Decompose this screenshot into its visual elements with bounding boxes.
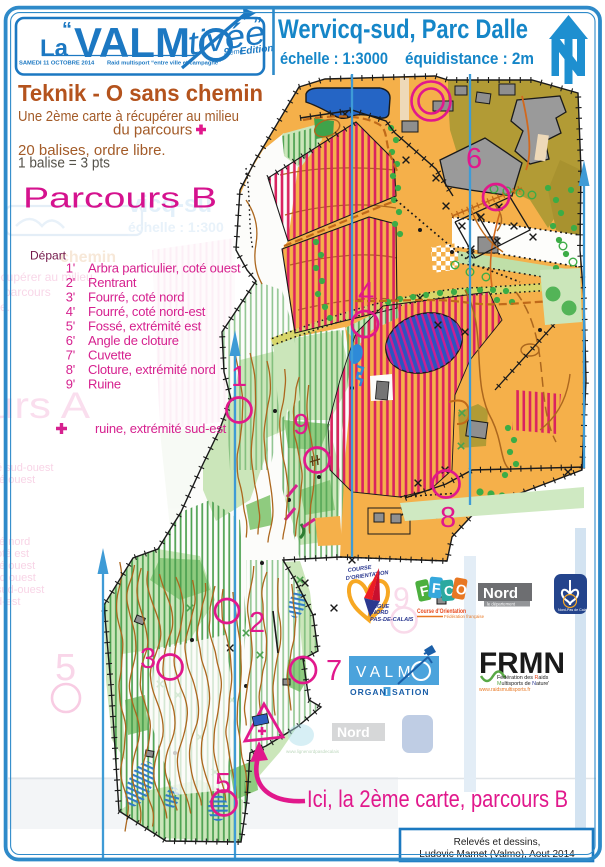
svg-text:Arbra particulier, coté ouest: Arbra particulier, coté ouest [88, 261, 241, 276]
svg-text:1: 1 [231, 361, 247, 393]
svg-text:1': 1' [66, 261, 75, 276]
svg-text:Départ: Départ [30, 249, 67, 263]
svg-text:Raid multisport “entre ville e: Raid multisport “entre ville et campagne… [107, 61, 221, 67]
svg-text:Cloture, extrémité nord: Cloture, extrémité nord [88, 362, 216, 377]
svg-text:“: “ [62, 19, 72, 41]
svg-text:”: ” [253, 14, 262, 34]
svg-text:www.lignenordpasdecalais: www.lignenordpasdecalais [286, 749, 340, 754]
svg-text:I: I [386, 687, 389, 697]
svg-text:5': 5' [66, 319, 75, 334]
svg-text:Teknik - O sans chemin: Teknik - O sans chemin [18, 80, 263, 106]
svg-text:9': 9' [66, 377, 75, 392]
svg-text:4': 4' [66, 304, 75, 319]
svg-text:Nord-Pas de Calais: Nord-Pas de Calais [558, 608, 589, 612]
svg-text:Fourré, coté nord: Fourré, coté nord [88, 290, 184, 305]
svg-text:VALM: VALM [356, 664, 415, 681]
svg-text:www.raidsmultisports.fr: www.raidsmultisports.fr [479, 687, 531, 693]
svg-text:ruine, extrémité sud-est: ruine, extrémité sud-est [95, 421, 227, 436]
svg-text:Fossé, extrémité est: Fossé, extrémité est [88, 319, 202, 334]
svg-text:Fédération française: Fédération française [444, 614, 485, 619]
svg-text:5: 5 [55, 647, 76, 689]
svg-text:3: 3 [140, 643, 156, 675]
svg-text:é sud-ouest: é sud-ouest [0, 462, 53, 474]
svg-text:Nord: Nord [337, 724, 370, 740]
svg-text:le département: le département [487, 602, 516, 607]
svg-text:Nord: Nord [483, 585, 518, 602]
svg-text:Relevés et dessins,: Relevés et dessins, [454, 837, 541, 848]
svg-text:du parcours: du parcours [113, 122, 192, 139]
svg-text:urs A: urs A [0, 385, 90, 426]
svg-text:PAS-DE-CALAIS: PAS-DE-CALAIS [370, 617, 414, 623]
svg-text:Cuvette: Cuvette [88, 348, 131, 363]
svg-text:Ici, la 2ème carte, parcours B: Ici, la 2ème carte, parcours B [307, 786, 568, 813]
svg-text:7: 7 [326, 655, 342, 687]
svg-text:Parcours B: Parcours B [23, 183, 217, 215]
svg-text:4: 4 [358, 277, 374, 309]
svg-text:2': 2' [66, 275, 75, 290]
svg-text:NORD: NORD [372, 610, 388, 616]
svg-text:6': 6' [66, 333, 75, 348]
svg-text:ORGAN: ORGAN [350, 687, 387, 697]
svg-text:Angle de cloture: Angle de cloture [88, 333, 179, 348]
svg-text:2: 2 [249, 607, 265, 639]
svg-text:SAMEDI 11 OCTOBRE 2014: SAMEDI 11 OCTOBRE 2014 [19, 61, 95, 67]
svg-text:VALM: VALM [74, 19, 190, 66]
svg-text:Wervicq-sud, Parc Dalle: Wervicq-sud, Parc Dalle [278, 14, 528, 44]
svg-text:Fourré, coté nord-est: Fourré, coté nord-est [88, 304, 206, 319]
svg-text:échelle : 1:300: échelle : 1:300 [128, 219, 224, 235]
svg-text:échelle : 1:3000: échelle : 1:3000 [280, 49, 388, 68]
svg-text:1 balise = 3 pts: 1 balise = 3 pts [18, 155, 110, 172]
svg-text:5: 5 [215, 768, 231, 800]
svg-text:équidistance : 2m: équidistance : 2m [405, 49, 534, 68]
svg-text:Rentrant: Rentrant [88, 275, 137, 290]
svg-text:9: 9 [293, 409, 309, 441]
svg-text:écupérer au milieu: écupérer au milieu [0, 270, 93, 284]
svg-text:6: 6 [466, 143, 482, 175]
svg-text:8: 8 [440, 502, 456, 534]
svg-text:3': 3' [66, 290, 75, 305]
svg-text:SATION: SATION [392, 687, 429, 697]
svg-text:7': 7' [66, 348, 75, 363]
svg-text:8': 8' [66, 362, 75, 377]
svg-text:Ruine: Ruine [88, 377, 121, 392]
